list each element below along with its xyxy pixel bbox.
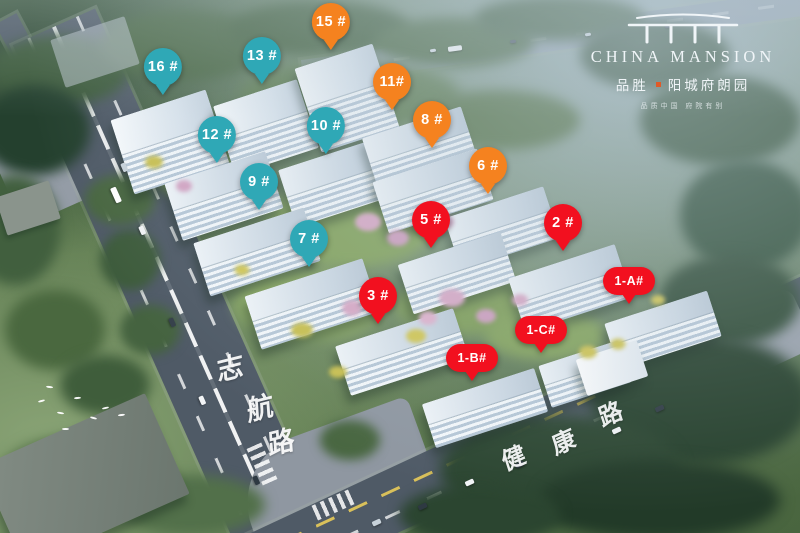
pin-label: 1-C# — [515, 316, 567, 344]
brand-logo: CHINA MANSION 品胜 阳城府朗园 品质中国 府院有别 — [578, 10, 788, 111]
building-pin-16[interactable]: 16 # — [144, 48, 182, 95]
pin-tail — [424, 238, 438, 248]
building-pin-5[interactable]: 5 # — [412, 201, 450, 248]
pin-label: 15 # — [312, 3, 350, 41]
pin-label: 5 # — [412, 201, 450, 239]
building-pin-6[interactable]: 6 # — [469, 147, 507, 194]
building-pin-2[interactable]: 2 # — [544, 204, 582, 251]
pin-tail — [385, 100, 399, 110]
pin-tail — [556, 241, 570, 251]
building-pin-9[interactable]: 9 # — [240, 163, 278, 210]
site-plan-rendering: 志航路健康路 16 #13 #15 #11#12 #10 #8 #9 #6 #7… — [0, 0, 800, 533]
building-pin-1-A[interactable]: 1-A# — [603, 267, 655, 304]
pin-tail — [425, 138, 439, 148]
pin-tail — [622, 294, 636, 304]
pin-label: 11# — [373, 63, 411, 101]
logo-dot — [656, 82, 661, 87]
building-pin-7[interactable]: 7 # — [290, 220, 328, 267]
building-pin-3[interactable]: 3 # — [359, 277, 397, 324]
building-pin-11[interactable]: 11# — [373, 63, 411, 110]
pin-label: 3 # — [359, 277, 397, 315]
pin-label: 2 # — [544, 204, 582, 242]
pin-label: 7 # — [290, 220, 328, 258]
building-pin-1-C[interactable]: 1-C# — [515, 316, 567, 353]
pin-tail — [481, 184, 495, 194]
pin-label: 6 # — [469, 147, 507, 185]
pin-label: 10 # — [307, 107, 345, 145]
brand-name-en: CHINA MANSION — [578, 47, 788, 67]
brand-name-cn: 品胜 — [616, 74, 649, 94]
pin-label: 8 # — [413, 101, 451, 139]
pin-tail — [156, 85, 170, 95]
pin-tail — [534, 343, 548, 353]
pin-tail — [255, 74, 269, 84]
building-pin-13[interactable]: 13 # — [243, 37, 281, 84]
pin-tail — [324, 40, 338, 50]
building-pin-12[interactable]: 12 # — [198, 116, 236, 163]
building-pin-8[interactable]: 8 # — [413, 101, 451, 148]
pin-tail — [371, 314, 385, 324]
pin-tail — [465, 371, 479, 381]
pin-label: 1-B# — [446, 344, 498, 372]
pin-tail — [302, 257, 316, 267]
building-pin-10[interactable]: 10 # — [307, 107, 345, 154]
pin-label: 1-A# — [603, 267, 655, 295]
pin-label: 9 # — [240, 163, 278, 201]
gate-icon — [623, 10, 743, 44]
pin-label: 13 # — [243, 37, 281, 75]
building-pin-1-B[interactable]: 1-B# — [446, 344, 498, 381]
building-pin-15[interactable]: 15 # — [312, 3, 350, 50]
pin-label: 12 # — [198, 116, 236, 154]
pin-tail — [319, 144, 333, 154]
pin-tail — [210, 153, 224, 163]
project-title-cn: 阳城府朗园 — [668, 74, 751, 94]
pin-tail — [252, 200, 266, 210]
project-name-cn: 品胜 阳城府朗园 — [578, 74, 788, 94]
pin-label: 16 # — [144, 48, 182, 86]
brand-tagline: 品质中国 府院有别 — [578, 101, 788, 111]
